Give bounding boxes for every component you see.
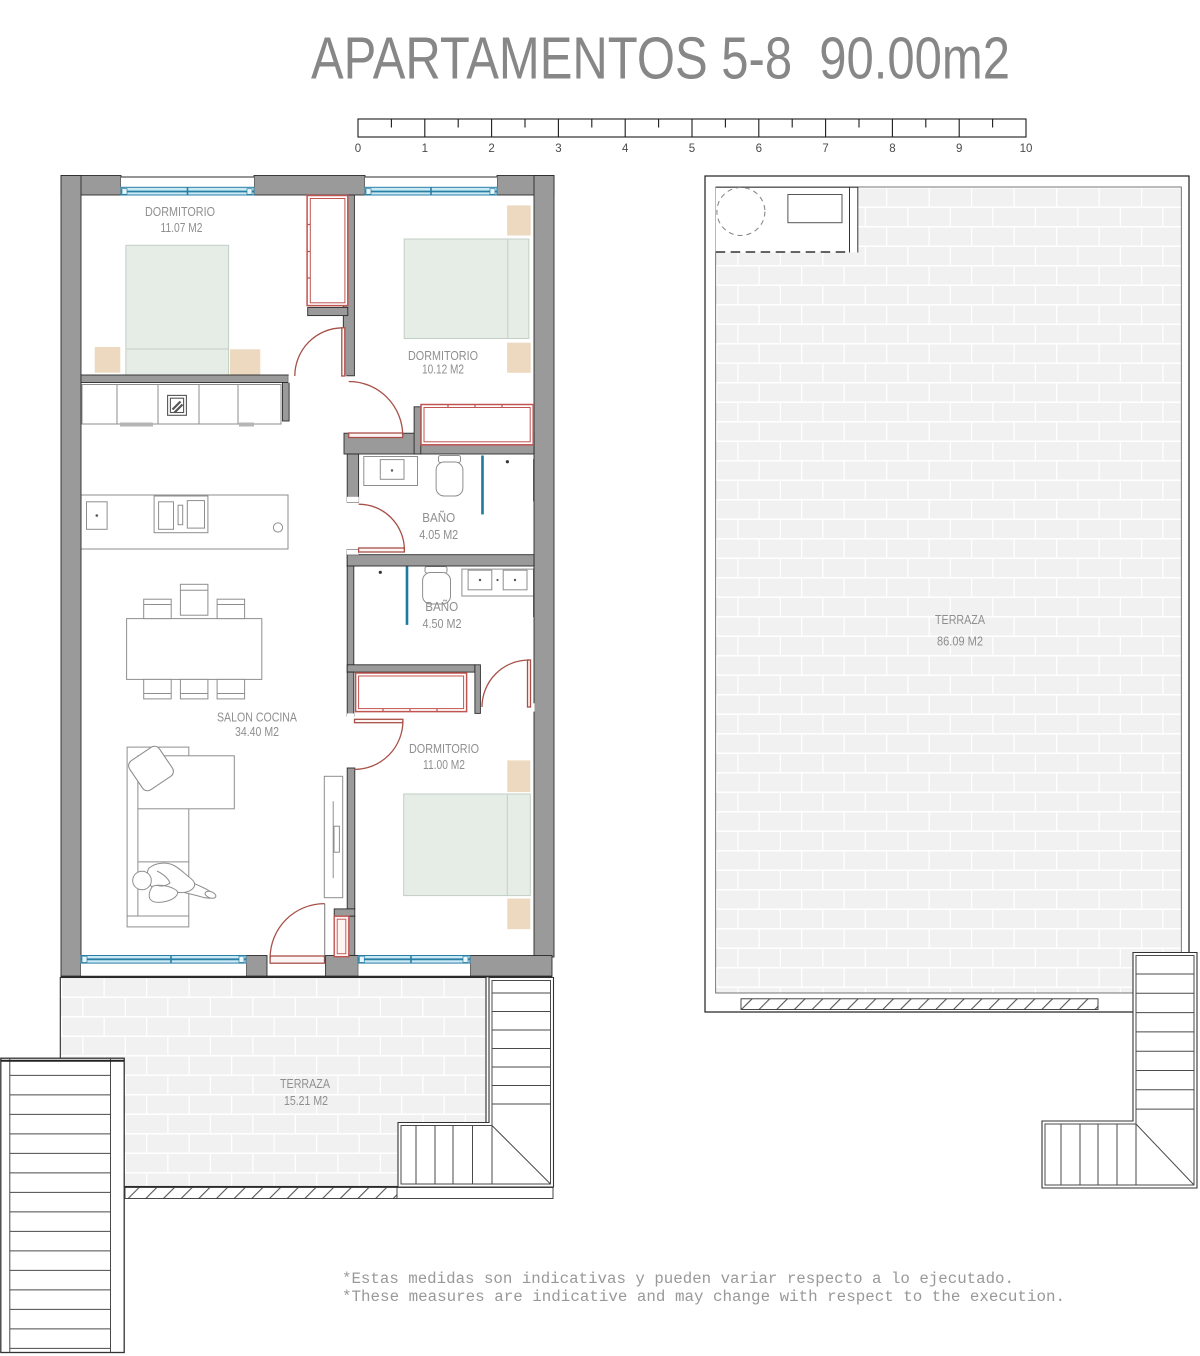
svg-text:DORMITORIO: DORMITORIO	[145, 205, 215, 219]
svg-text:SALON COCINA: SALON COCINA	[217, 711, 298, 725]
svg-text:4: 4	[622, 143, 629, 155]
svg-text:6: 6	[756, 143, 762, 155]
svg-text:DORMITORIO: DORMITORIO	[408, 349, 478, 363]
svg-text:APARTAMENTOS 5-8 90.00m2: APARTAMENTOS 5-8 90.00m2	[311, 26, 1010, 92]
svg-text:9: 9	[956, 143, 962, 155]
svg-text:86.09 M2: 86.09 M2	[937, 635, 983, 649]
svg-text:0: 0	[355, 143, 361, 155]
svg-text:BAÑO: BAÑO	[425, 600, 458, 614]
svg-text:2: 2	[488, 143, 494, 155]
svg-text:10: 10	[1020, 143, 1033, 155]
svg-text:TERRAZA: TERRAZA	[935, 613, 986, 627]
svg-text:DORMITORIO: DORMITORIO	[409, 742, 479, 756]
svg-text:8: 8	[889, 143, 895, 155]
svg-text:10.12 M2: 10.12 M2	[422, 363, 464, 377]
svg-text:*These measures are indicative: *These measures are indicative and may c…	[342, 1288, 1065, 1306]
svg-text:*Estas medidas son indicativas: *Estas medidas son indicativas y pueden …	[342, 1270, 1014, 1288]
svg-text:5: 5	[689, 143, 695, 155]
svg-text:7: 7	[822, 143, 828, 155]
svg-text:15.21 M2: 15.21 M2	[284, 1094, 328, 1108]
svg-text:11.00 M2: 11.00 M2	[423, 758, 465, 772]
svg-text:34.40 M2: 34.40 M2	[235, 725, 279, 739]
svg-text:11.07 M2: 11.07 M2	[161, 221, 203, 235]
svg-text:BAÑO: BAÑO	[422, 511, 455, 525]
svg-text:3: 3	[555, 143, 561, 155]
svg-text:TERRAZA: TERRAZA	[280, 1077, 331, 1091]
svg-text:4.05 M2: 4.05 M2	[419, 528, 458, 542]
svg-text:1: 1	[422, 143, 428, 155]
svg-text:4.50 M2: 4.50 M2	[423, 617, 462, 631]
